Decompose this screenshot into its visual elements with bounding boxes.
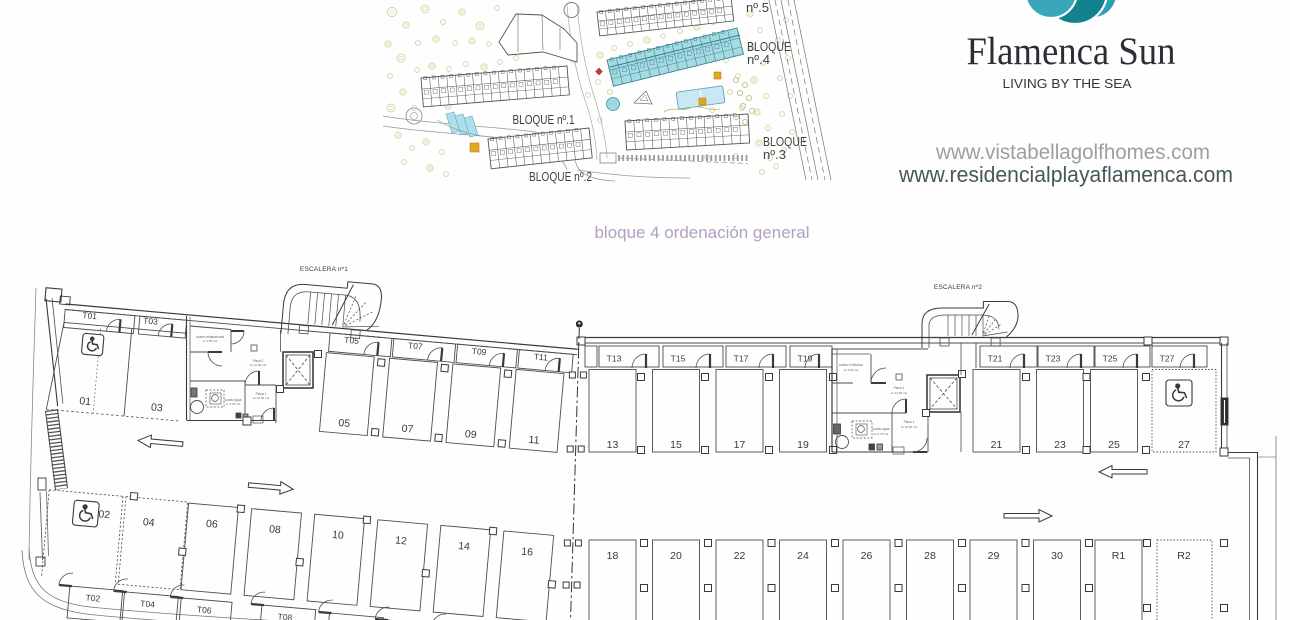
svg-text:T19: T19 [798,354,813,364]
svg-text:sx 12.90 m2: sx 12.90 m2 [891,391,908,395]
svg-text:Plaza 1: Plaza 1 [904,420,915,424]
svg-text:23: 23 [1054,439,1066,451]
svg-text:BLOQUE nº.1: BLOQUE nº.1 [513,113,575,127]
svg-text:ESCALERA nº2: ESCALERA nº2 [934,284,982,291]
svg-text:Plaza 2: Plaza 2 [894,386,905,390]
svg-text:19: 19 [797,439,809,451]
svg-text:nº.4: nº.4 [747,53,770,67]
svg-text:T17: T17 [734,354,749,364]
svg-text:BLOQUE: BLOQUE [747,40,791,54]
svg-text:30: 30 [1051,550,1063,562]
svg-text:sx 3.55 m2: sx 3.55 m2 [203,339,218,343]
svg-text:11: 11 [528,434,540,447]
svg-text:nº.5: nº.5 [746,1,769,15]
svg-text:sx 3.62 m2: sx 3.62 m2 [844,368,859,372]
svg-text:sx 4.78 m2: sx 4.78 m2 [874,432,889,436]
svg-text:T21: T21 [988,354,1003,364]
svg-text:21: 21 [991,439,1003,451]
svg-text:13: 13 [607,439,619,451]
svg-text:24: 24 [797,550,809,562]
svg-text:17: 17 [734,439,746,451]
svg-text:T05: T05 [344,335,360,346]
svg-text:05: 05 [338,417,351,430]
svg-text:www.vistabellagolfhomes.com: www.vistabellagolfhomes.com [935,141,1210,164]
svg-text:T01: T01 [82,310,98,321]
svg-text:BLOQUE: BLOQUE [763,135,807,149]
svg-text:12: 12 [395,534,408,547]
svg-text:26: 26 [861,550,873,562]
svg-text:03: 03 [151,401,164,414]
svg-text:cuarto d eléctrico: cuarto d eléctrico [839,363,863,367]
svg-text:T02: T02 [85,592,101,603]
svg-text:22: 22 [734,550,746,562]
svg-text:28: 28 [924,550,936,562]
svg-text:sx 12.90 m2: sx 12.90 m2 [250,363,267,367]
svg-text:29: 29 [988,550,1000,562]
svg-text:09: 09 [464,428,477,441]
svg-text:Flamenca Sun: Flamenca Sun [967,30,1176,73]
svg-text:BLOQUE nº.2: BLOQUE nº.2 [529,170,592,184]
svg-text:T07: T07 [408,340,424,351]
svg-text:T27: T27 [1160,354,1175,364]
svg-text:08: 08 [269,523,282,536]
svg-text:sx 10.90 m2: sx 10.90 m2 [253,396,270,400]
svg-text:bloque 4 ordenación general: bloque 4 ordenación general [595,223,810,242]
svg-text:T09: T09 [471,346,487,357]
svg-text:20: 20 [670,550,682,562]
svg-text:07: 07 [401,423,414,436]
svg-text:27: 27 [1178,439,1190,451]
svg-text:04: 04 [142,516,155,529]
svg-text:T06: T06 [197,604,213,615]
svg-text:R1: R1 [1112,550,1126,562]
svg-text:16: 16 [521,546,534,559]
svg-text:18: 18 [607,550,619,562]
svg-text:T11: T11 [533,351,548,362]
svg-text:25: 25 [1108,439,1120,451]
svg-text:T15: T15 [671,354,686,364]
svg-text:sx 10.90 m2: sx 10.90 m2 [901,425,918,429]
svg-text:ESCALERA nº1: ESCALERA nº1 [300,266,348,273]
svg-text:T08: T08 [277,611,293,620]
svg-text:cuarto agua: cuarto agua [873,427,890,431]
svg-text:02: 02 [98,508,111,521]
svg-text:T03: T03 [143,315,159,326]
svg-text:sx 4.78 m2: sx 4.78 m2 [226,402,241,406]
svg-text:www.residencialplayaflamenca.c: www.residencialplayaflamenca.com [898,162,1233,187]
svg-text:LIVING BY THE SEA: LIVING BY THE SEA [1003,77,1133,91]
svg-text:R2: R2 [1177,550,1191,562]
svg-text:10: 10 [332,529,345,542]
svg-text:T23: T23 [1046,354,1061,364]
svg-text:01: 01 [79,395,92,408]
svg-text:14: 14 [458,540,471,553]
svg-text:T04: T04 [140,598,156,609]
svg-text:15: 15 [670,439,682,451]
svg-text:T25: T25 [1103,354,1118,364]
svg-text:06: 06 [206,518,219,531]
svg-text:nº.3: nº.3 [763,148,786,162]
svg-text:T13: T13 [607,354,622,364]
